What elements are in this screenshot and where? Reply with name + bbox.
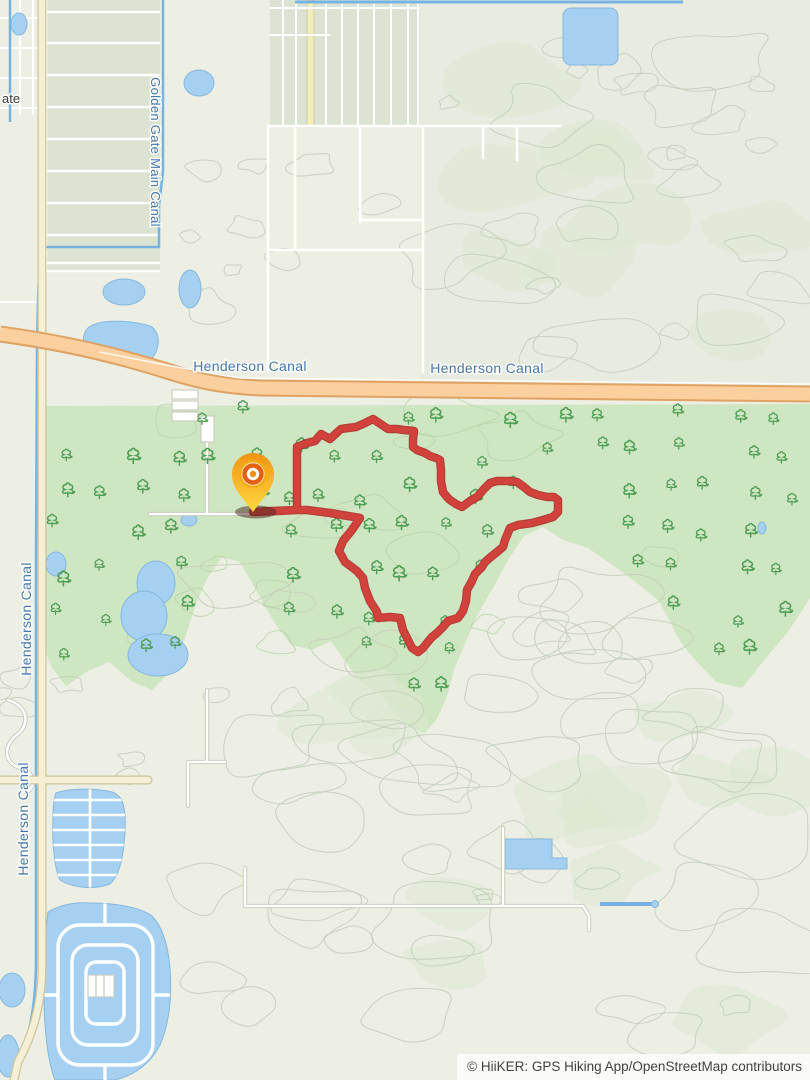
label-partial-place: ate [2, 91, 20, 106]
label-golden-gate-main-canal: Golden Gate Main Canal [148, 77, 163, 227]
parcel-grid-left [46, 0, 160, 272]
label-henderson-canal-left-lower: Henderson Canal [15, 762, 31, 875]
lake-a [103, 279, 145, 305]
attribution-text: © HiiKER: GPS Hiking App/OpenStreetMap c… [467, 1059, 802, 1074]
label-henderson-canal-1: Henderson Canal [193, 358, 306, 374]
label-henderson-canal-2: Henderson Canal [430, 360, 543, 376]
attribution-bar: © HiiKER: GPS Hiking App/OpenStreetMap c… [457, 1054, 810, 1080]
label-henderson-canal-left-upper: Henderson Canal [18, 562, 34, 675]
map-screen: ate Golden Gate Main Canal Henderson Can… [0, 0, 810, 1080]
trail-start-pin[interactable] [232, 453, 277, 519]
pond-topright [563, 8, 618, 65]
lake-cluster-2 [121, 591, 167, 641]
map-canvas[interactable]: ate Golden Gate Main Canal Henderson Can… [0, 0, 810, 1080]
lake-b [179, 270, 201, 308]
